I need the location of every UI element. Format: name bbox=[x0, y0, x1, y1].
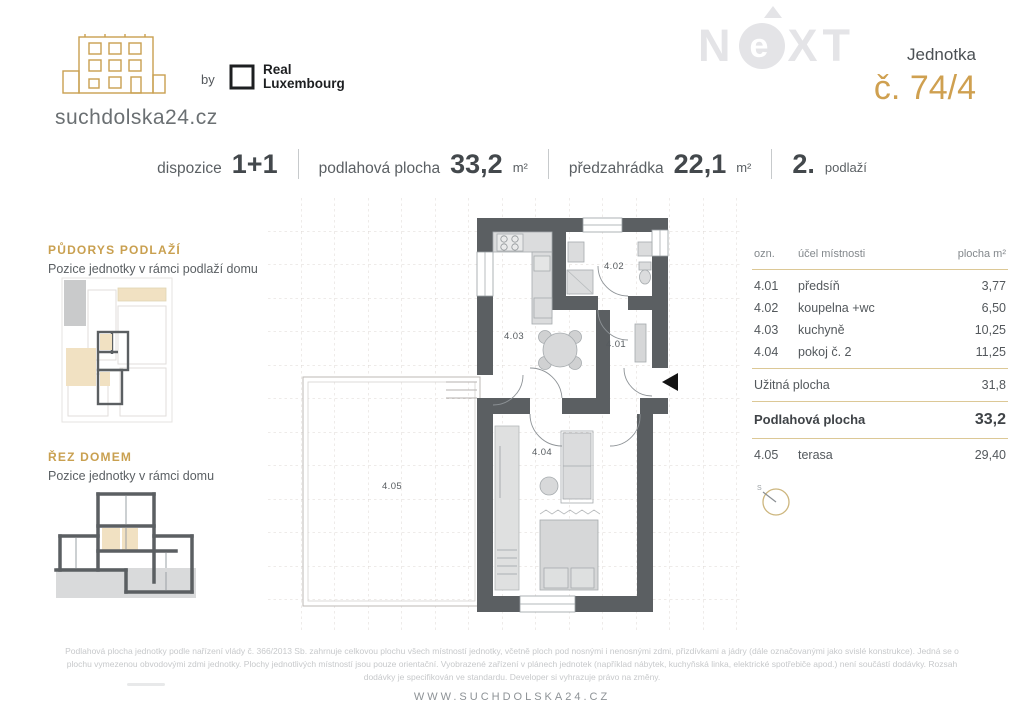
table-row: 4.02 koupelna +wc 6,50 bbox=[752, 297, 1008, 319]
cell-name: pokoj č. 2 bbox=[798, 345, 976, 359]
mini-section-diagram bbox=[46, 484, 206, 611]
watermark-xt: XT bbox=[788, 20, 856, 72]
header-area: plocha m² bbox=[958, 248, 1006, 260]
terrace-row: 4.05 terasa 29,40 bbox=[752, 444, 1008, 466]
cell-name: terasa bbox=[798, 448, 975, 462]
site-logo: suchdolska24.cz bbox=[55, 33, 218, 130]
cell-area: 29,40 bbox=[975, 448, 1006, 462]
unit-label: Jednotka bbox=[874, 45, 976, 65]
spec-value: 22,1 bbox=[674, 149, 727, 180]
header-ozn: ozn. bbox=[754, 248, 798, 260]
cell-name: předsíň bbox=[798, 279, 982, 293]
by-label: by bbox=[201, 72, 215, 87]
spec-label: dispozice bbox=[157, 160, 222, 178]
cell-name: koupelna +wc bbox=[798, 301, 982, 315]
cell-area: 6,50 bbox=[982, 301, 1006, 315]
spec-unit: m² bbox=[736, 160, 751, 175]
usable-label: Užitná plocha bbox=[754, 378, 982, 392]
table-divider bbox=[752, 401, 1008, 402]
watermark-arrow-icon bbox=[764, 6, 782, 18]
square-logo-icon bbox=[229, 64, 255, 90]
spec-divider bbox=[771, 149, 772, 179]
cell-ozn: 4.02 bbox=[754, 301, 798, 315]
partner-name-line2: Luxembourg bbox=[263, 77, 345, 91]
room-label-402: 4.02 bbox=[604, 261, 624, 272]
cell-name: kuchyně bbox=[798, 323, 975, 337]
table-divider bbox=[752, 438, 1008, 439]
cell-ozn: 4.03 bbox=[754, 323, 798, 337]
unit-number: č. 74/4 bbox=[874, 69, 976, 108]
spec-label: předzahrádka bbox=[569, 160, 664, 178]
room-table: ozn. účel místnosti plocha m² 4.01 předs… bbox=[752, 244, 1008, 523]
cell-area: 3,77 bbox=[982, 279, 1006, 293]
room-label-403: 4.03 bbox=[504, 331, 524, 342]
partner-logo: Real Luxembourg bbox=[229, 63, 345, 91]
section-cut-subtitle: Pozice jednotky v rámci domu bbox=[48, 469, 214, 483]
unit-header: Jednotka č. 74/4 bbox=[874, 45, 976, 108]
spec-strip: dispozice 1+1 podlahová plocha 33,2 m² p… bbox=[0, 142, 1024, 186]
floor-area-row: Podlahová plocha 33,2 bbox=[752, 407, 1008, 433]
footer-mark bbox=[127, 683, 165, 686]
spec-unit: podlaží bbox=[825, 160, 867, 175]
spec-predzahradka: předzahrádka 22,1 m² bbox=[569, 149, 752, 180]
spec-podlazi: 2. podlaží bbox=[792, 149, 866, 180]
usable-area-row: Užitná plocha 31,8 bbox=[752, 374, 1008, 396]
watermark-e-circle: e bbox=[739, 23, 785, 69]
header-name: účel místnosti bbox=[798, 248, 958, 260]
spec-dispozice: dispozice 1+1 bbox=[157, 149, 277, 180]
legal-disclaimer: Podlahová plocha jednotky podle nařízení… bbox=[62, 645, 962, 685]
spec-value: 2. bbox=[792, 149, 815, 180]
spec-value: 33,2 bbox=[450, 149, 503, 180]
room-label-405: 4.05 bbox=[382, 481, 402, 492]
spec-value: 1+1 bbox=[232, 149, 278, 180]
compass-south-label: S bbox=[757, 485, 762, 492]
mini-floorplan-diagram bbox=[60, 276, 176, 429]
spec-label: podlahová plocha bbox=[319, 160, 441, 178]
sidebar-section-heading: ŘEZ DOMEM Pozice jednotky v rámci domu bbox=[48, 450, 214, 483]
watermark-n: N bbox=[698, 20, 736, 72]
floorplan-section-title: PŮDORYS PODLAŽÍ bbox=[48, 243, 258, 257]
site-name: suchdolska24.cz bbox=[55, 106, 218, 130]
room-label-404: 4.04 bbox=[532, 447, 552, 458]
table-divider bbox=[752, 368, 1008, 369]
table-divider bbox=[752, 269, 1008, 270]
floor-area-label: Podlahová plocha bbox=[754, 412, 975, 427]
spec-divider bbox=[298, 149, 299, 179]
partner-name-line1: Real bbox=[263, 63, 345, 77]
table-row: 4.03 kuchyně 10,25 bbox=[752, 319, 1008, 341]
cell-ozn: 4.04 bbox=[754, 345, 798, 359]
spec-unit: m² bbox=[513, 160, 528, 175]
building-icon bbox=[55, 33, 181, 97]
table-row: 4.04 pokoj č. 2 11,25 bbox=[752, 341, 1008, 363]
floor-plan: 4.03 4.02 4.01 4.04 4.05 bbox=[268, 198, 740, 637]
spec-divider bbox=[548, 149, 549, 179]
sidebar-floorplan-heading: PŮDORYS PODLAŽÍ Pozice jednotky v rámci … bbox=[48, 243, 258, 276]
next-watermark: NeXT bbox=[698, 20, 855, 72]
section-cut-title: ŘEZ DOMEM bbox=[48, 450, 214, 464]
website-link[interactable]: WWW.SUCHDOLSKA24.CZ bbox=[0, 691, 1024, 703]
table-header-row: ozn. účel místnosti plocha m² bbox=[752, 244, 1008, 264]
spec-podlahova-plocha: podlahová plocha 33,2 m² bbox=[319, 149, 528, 180]
cell-ozn: 4.05 bbox=[754, 448, 798, 462]
floor-area-value: 33,2 bbox=[975, 411, 1006, 429]
cell-ozn: 4.01 bbox=[754, 279, 798, 293]
compass-icon: S bbox=[754, 480, 1008, 523]
cell-area: 11,25 bbox=[976, 345, 1006, 359]
cell-area: 10,25 bbox=[975, 323, 1006, 337]
room-label-401: 4.01 bbox=[606, 339, 626, 350]
floorplan-section-subtitle: Pozice jednotky v rámci podlaží domu bbox=[48, 262, 258, 276]
usable-value: 31,8 bbox=[982, 378, 1006, 392]
table-row: 4.01 předsíň 3,77 bbox=[752, 275, 1008, 297]
